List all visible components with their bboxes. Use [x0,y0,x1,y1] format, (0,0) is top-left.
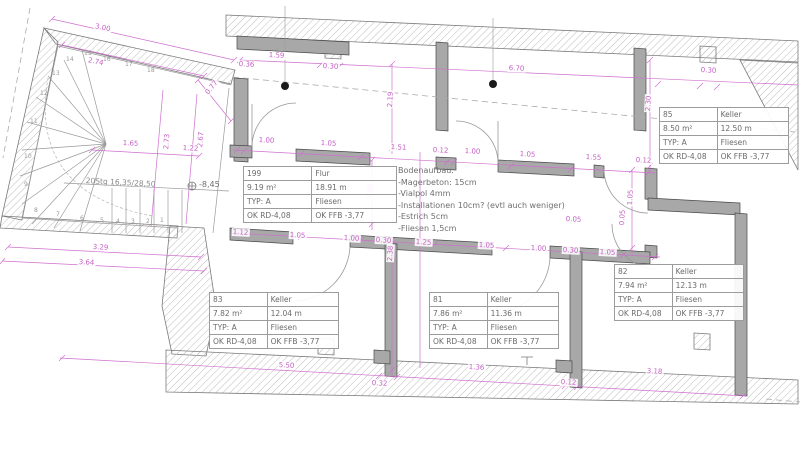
dimension-label: 0.36 [238,60,256,69]
dimension-label: 1.05 [599,248,617,257]
room-ok-rd: OK RD-4,08 [430,335,488,348]
room-info-table-85: 85 Keller 8.50 m² 12.50 m TYP: A Fliesen… [659,107,789,164]
stair-tread-number: 15 [84,51,92,57]
dimension-label: 0.12 [560,378,578,387]
dimension-label: 1.05 [289,231,307,240]
dimension-label: 1.05 [478,241,496,250]
stair-tread-number: 11 [30,119,38,125]
room-number: 85 [660,108,718,122]
floorplan-canvas: 3.002.740.772.732.671.651.223.293.641.59… [0,0,800,467]
stair-tread-number: 8 [34,208,38,214]
stair-tread-number: 10 [24,154,32,160]
level-marker-label: -8,45 [199,180,220,189]
room-number: 82 [615,265,673,279]
dimension-label: 0.12 [635,156,653,165]
room-ok-rd: OK RD-4,08 [244,209,312,222]
dimension-label: 0.05 [618,208,627,226]
stair-tread-number: 5 [100,218,104,224]
stair-tread-number: 18 [147,68,155,74]
stair-tread-number: 16 [103,57,111,63]
stair-tread-number: 9 [24,182,28,188]
dimension-label: 1.00 [464,147,482,156]
room-name: Flur [312,167,396,181]
dimension-label: 1.65 [122,139,140,148]
dimension-label: 1.51 [390,143,408,152]
room-ok-rd: OK RD-4,08 [210,335,268,348]
room-ok-ffb: OK FFB -3,77 [718,150,788,163]
dimension-label: 0.30 [700,66,718,75]
room-area: 7.86 m² [430,307,488,321]
dimension-label: 0.05 [565,215,583,224]
dimension-label: 0.30 [375,236,393,245]
dimension-label: 1.00 [530,244,548,253]
stair-tread-number: 13 [52,71,60,77]
room-type: TYP: A [430,321,488,335]
stair-tread-number: 3 [131,219,135,225]
stair-tread-number: 17 [125,62,133,68]
room-type: TYP: A [210,321,268,335]
note-line-2: -Vialpol 4mm [398,188,565,200]
room-info-table-82: 82 Keller 7.94 m² 12.13 m TYP: A Fliesen… [614,264,744,321]
room-type: TYP: A [615,293,673,307]
room-perimeter: 12.04 m [268,307,338,321]
room-info-table-81: 81 Keller 7.86 m² 11.36 m TYP: A Fliesen… [429,292,559,349]
dimension-label: 3.29 [92,243,110,252]
room-area: 7.82 m² [210,307,268,321]
dimension-label: 1.59 [268,51,286,60]
room-ok-ffb: OK FFB -3,77 [488,335,558,348]
room-area: 9.19 m² [244,181,312,195]
dimension-label: 3.00 [93,22,112,33]
dimension-label: 0.12 [432,146,450,155]
room-ok-ffb: OK FFB -3,77 [673,307,743,320]
note-line-3: -Installationen 10cm? (evtl auch weniger… [398,200,565,212]
room-ok-ffb: OK FFB -3,77 [312,209,396,222]
room-perimeter: 12.13 m [673,279,743,293]
room-perimeter: 12.50 m [718,122,788,136]
room-floor: Fliesen [268,321,338,335]
room-name: Keller [488,293,558,307]
room-type: TYP: A [660,136,718,150]
dimension-label: 1.00 [343,234,361,243]
dimension-label: 0.32 [371,379,389,388]
dimension-label: 1.55 [585,153,603,162]
room-ok-ffb: OK FFB -3,77 [268,335,338,348]
room-ok-rd: OK RD-4,08 [615,307,673,320]
room-perimeter: 11.36 m [488,307,558,321]
stair-tread-number: 6 [80,216,84,222]
room-name: Keller [673,265,743,279]
dimension-label: 1.05 [626,188,635,206]
room-floor: Fliesen [718,136,788,150]
dimension-label: 1.05 [519,150,537,159]
dimension-label: 1.22 [182,144,200,153]
dimension-label: 0.30 [562,246,580,255]
room-area: 8.50 m² [660,122,718,136]
room-number: 199 [244,167,312,181]
dimension-label: 0.77 [203,78,220,97]
stair-tread-number: 12 [40,91,48,97]
dimension-label: 3.64 [78,258,96,267]
room-ok-rd: OK RD-4,08 [660,150,718,163]
room-floor: Fliesen [488,321,558,335]
room-info-table-83: 83 Keller 7.82 m² 12.04 m TYP: A Fliesen… [209,292,339,349]
room-floor: Fliesen [312,195,396,209]
dimension-label: 1.36 [468,363,486,372]
room-number: 83 [210,293,268,307]
room-name: Keller [268,293,338,307]
stair-tread-number: 2 [146,219,150,225]
stair-tread-number: 7 [56,212,60,218]
dimension-label: 2.30 [644,94,653,112]
dimension-label: 0.30 [322,62,340,71]
note-line-4: -Estrich 5cm [398,211,565,223]
note-line-5: -Fliesen 1,5cm [398,223,565,235]
dimension-label: 1.05 [320,139,338,148]
note-title: Bodenaufbau: [398,165,565,177]
dimension-label: 1.12 [232,228,250,237]
room-info-table-199: 199 Flur 9.19 m² 18.91 m TYP: A Fliesen … [243,166,397,223]
dimension-label: 1.00 [258,136,276,145]
stair-tread-number: 14 [66,57,74,63]
dimension-label: 6.70 [508,64,526,73]
dimension-label: 2.73 [162,132,172,150]
room-number: 81 [430,293,488,307]
dimension-label: 1.25 [415,238,433,247]
stair-tread-number: 1 [160,218,164,224]
note-line-1: -Magerbeton: 15cm [398,177,565,189]
stair-tread-number: 4 [116,219,120,225]
room-floor: Fliesen [673,293,743,307]
floor-construction-note: Bodenaufbau: -Magerbeton: 15cm -Vialpol … [398,165,565,234]
dimension-label: 2.19 [386,90,395,108]
dimension-label: 5.50 [278,361,296,370]
dimension-label: 2.38 [386,244,395,262]
room-type: TYP: A [244,195,312,209]
room-name: Keller [718,108,788,122]
room-perimeter: 18.91 m [312,181,396,195]
dimension-label: 3.18 [646,367,664,376]
room-area: 7.94 m² [615,279,673,293]
